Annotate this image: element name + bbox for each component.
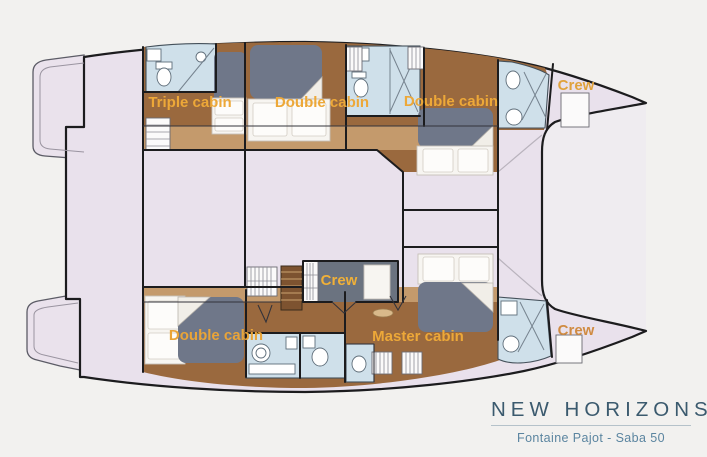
master-bed — [418, 254, 493, 332]
label-double-cabin-fwd-port: Double cabin — [404, 93, 498, 110]
bathroom-master — [346, 344, 374, 382]
wardrobe-port-2 — [408, 47, 424, 69]
wardrobe-master-2 — [402, 352, 422, 374]
catamaran-deck-plan: Triple cabin Double cabin Double cabin C… — [0, 0, 707, 457]
boat-name: NEW HORIZONS 2 — [491, 398, 691, 422]
label-triple-cabin: Triple cabin — [148, 94, 231, 111]
wardrobe-master-1 — [372, 352, 392, 374]
triple-cabin-bed — [212, 52, 246, 134]
bathroom-starboard-fwd — [498, 297, 551, 363]
wardrobe-midship — [247, 267, 277, 296]
foredeck-platform — [542, 103, 646, 331]
double-bed-aft-port — [248, 45, 330, 141]
label-master-cabin: Master cabin — [372, 328, 464, 345]
bathroom-port-fwd — [498, 61, 549, 128]
triple-cabin-ladder — [146, 118, 170, 150]
label-crew-bow-port: Crew — [558, 77, 595, 94]
double-bed-fwd-port — [417, 108, 493, 175]
wardrobe-port-1 — [346, 47, 362, 71]
master-cabin-table — [373, 309, 393, 317]
title-divider — [491, 425, 691, 426]
boat-model: Fontaine Pajot - Saba 50 — [491, 431, 691, 445]
label-double-cabin-aft-port: Double cabin — [275, 94, 369, 111]
label-double-cabin-aft-starboard: Double cabin — [169, 327, 263, 344]
deck-plan-drawing: Triple cabin Double cabin Double cabin C… — [0, 0, 707, 457]
bathroom-starboard-wc — [300, 333, 345, 378]
label-crew-bow-starboard: Crew — [558, 322, 595, 339]
title-block: NEW HORIZONS 2 Fontaine Pajot - Saba 50 — [491, 398, 691, 445]
bathroom-triple-cabin — [146, 44, 216, 92]
label-crew-midship: Crew — [321, 272, 358, 289]
